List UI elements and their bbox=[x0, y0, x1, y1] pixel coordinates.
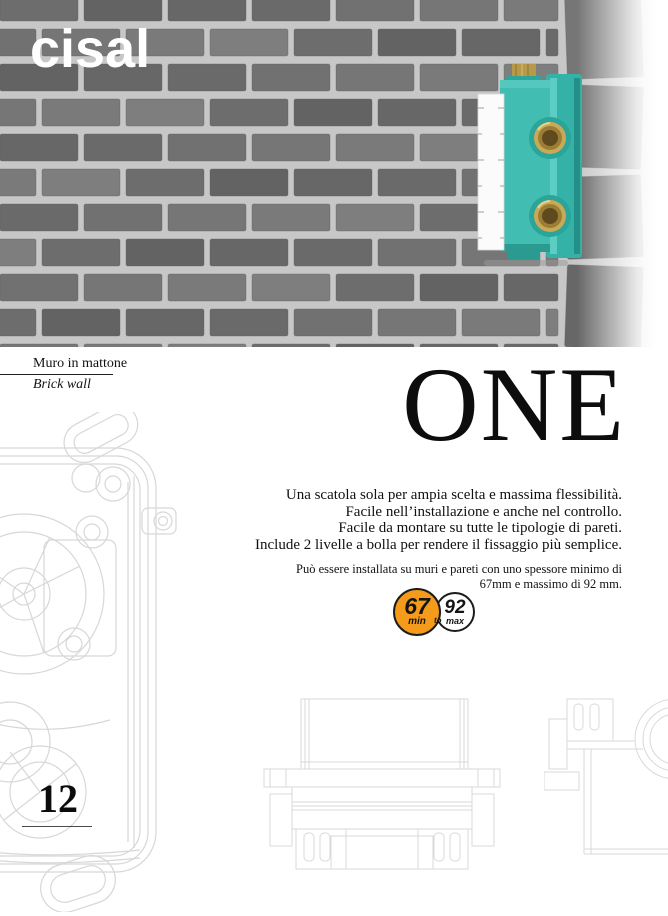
brick-wall-photo: cisal bbox=[0, 0, 656, 347]
technical-drawing-side bbox=[256, 694, 508, 876]
description-line: Facile nell’installazione e anche nel co… bbox=[192, 504, 622, 521]
page-number-rule bbox=[22, 826, 92, 827]
min-value: 67 bbox=[395, 595, 439, 617]
brand-logo: cisal bbox=[30, 22, 150, 76]
product-photo bbox=[466, 64, 592, 268]
badge-max-circle: 92 max bbox=[435, 592, 475, 632]
description-line: Una scatola sola per ampia scelta e mass… bbox=[192, 487, 622, 504]
catalog-page: cisal bbox=[0, 0, 668, 916]
description-line: Facile da montare su tutte le tipologie … bbox=[192, 520, 622, 537]
max-label: max bbox=[437, 617, 473, 626]
technical-drawing-profile bbox=[544, 694, 668, 862]
caption-divider bbox=[0, 374, 113, 375]
page-number: 12 bbox=[38, 778, 78, 820]
product-description: Una scatola sola per ampia scelta e mass… bbox=[192, 487, 622, 553]
max-value: 92 bbox=[437, 598, 473, 617]
technical-drawing-front bbox=[0, 412, 178, 912]
product-title: ONE bbox=[402, 351, 626, 459]
thickness-badge: 92 max 67 min to bbox=[393, 588, 483, 642]
note-line: Può essere installata su muri e pareti c… bbox=[222, 562, 622, 577]
photo-caption-italian: Muro in mattone bbox=[33, 356, 127, 372]
description-line: Include 2 livelle a bolla per rendere il… bbox=[192, 537, 622, 554]
photo-caption-english: Brick wall bbox=[33, 377, 91, 393]
min-label: min bbox=[395, 617, 439, 627]
installation-note: Può essere installata su muri e pareti c… bbox=[222, 562, 622, 591]
badge-min-circle: 67 min bbox=[393, 588, 441, 636]
badge-connector: to bbox=[434, 616, 442, 625]
